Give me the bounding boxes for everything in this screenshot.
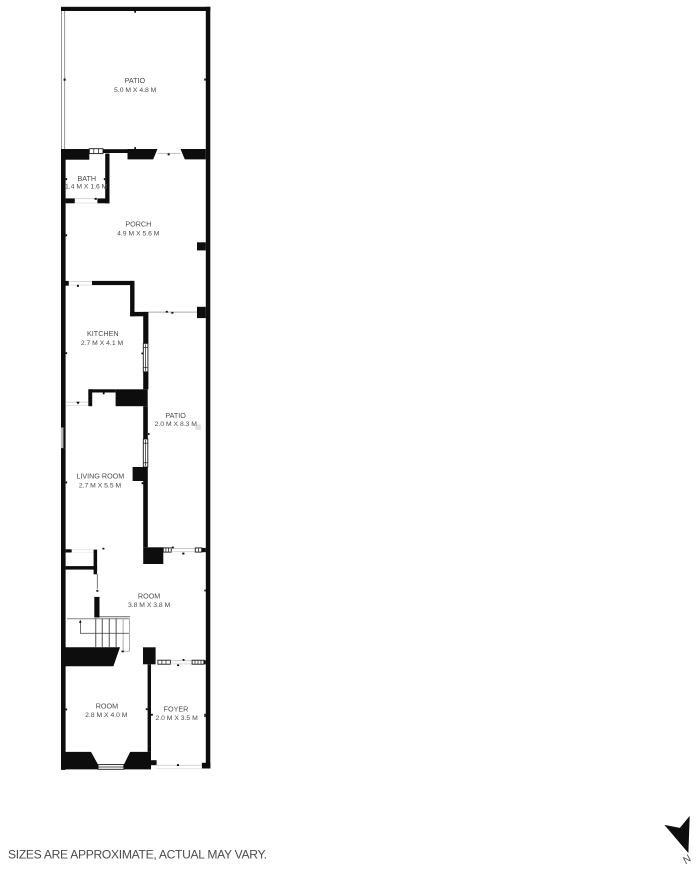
svg-text:4.9 M X 5.6 M: 4.9 M X 5.6 M: [117, 230, 160, 237]
svg-text:PATIO: PATIO: [125, 76, 146, 85]
svg-text:1.4 M X 1.6 M: 1.4 M X 1.6 M: [65, 184, 108, 191]
svg-text:ROOM: ROOM: [96, 702, 118, 711]
svg-text:ROOM: ROOM: [138, 591, 160, 600]
svg-text:LIVING ROOM: LIVING ROOM: [76, 471, 124, 480]
svg-text:2.0 M X 8.3 M: 2.0 M X 8.3 M: [155, 421, 198, 428]
svg-text:BATH: BATH: [77, 174, 96, 183]
svg-text:KITCHEN: KITCHEN: [87, 329, 119, 338]
svg-text:2.8 M X 4.0 M: 2.8 M X 4.0 M: [85, 712, 128, 719]
svg-text:2.7 M X 5.5 M: 2.7 M X 5.5 M: [79, 482, 122, 489]
svg-text:3.8 M X 3.8 M: 3.8 M X 3.8 M: [128, 602, 171, 609]
svg-text:FOYER: FOYER: [164, 704, 189, 713]
svg-text:PORCH: PORCH: [125, 219, 151, 228]
svg-text:5.0 M X 4.8 M: 5.0 M X 4.8 M: [114, 87, 157, 94]
svg-text:2.0 M X 3.5 M: 2.0 M X 3.5 M: [155, 715, 198, 722]
svg-text:2.7 M X 4.1 M: 2.7 M X 4.1 M: [81, 340, 124, 347]
svg-text:PATIO: PATIO: [165, 411, 186, 420]
svg-text:SIZES ARE APPROXIMATE, ACTUAL: SIZES ARE APPROXIMATE, ACTUAL MAY VARY.: [8, 848, 267, 862]
